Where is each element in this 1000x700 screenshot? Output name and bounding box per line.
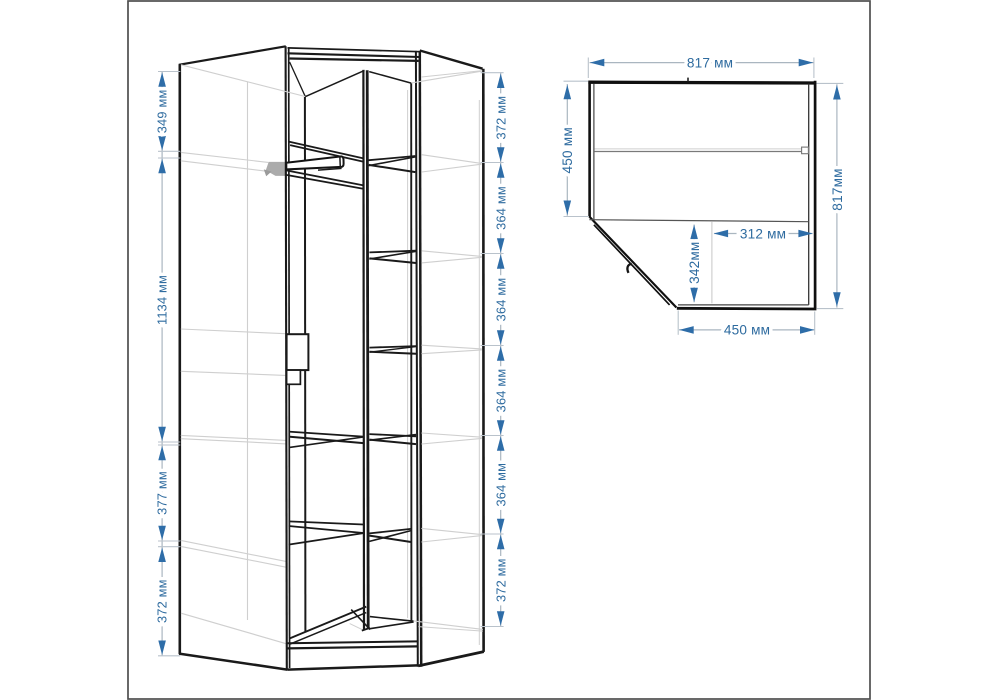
- svg-text:364 мм: 364 мм: [493, 369, 508, 413]
- svg-text:349 мм: 349 мм: [155, 90, 170, 134]
- svg-text:312 мм: 312 мм: [740, 226, 786, 241]
- svg-text:364 мм: 364 мм: [493, 463, 508, 507]
- svg-text:372 мм: 372 мм: [493, 558, 508, 602]
- svg-text:450 мм: 450 мм: [724, 323, 770, 338]
- svg-text:817 мм: 817 мм: [687, 55, 733, 70]
- svg-text:817мм: 817мм: [830, 168, 845, 210]
- svg-text:364 мм: 364 мм: [493, 278, 508, 322]
- svg-text:342мм: 342мм: [687, 242, 702, 284]
- svg-text:372 мм: 372 мм: [155, 579, 170, 623]
- svg-text:450 мм: 450 мм: [560, 127, 575, 173]
- svg-text:377 мм: 377 мм: [155, 471, 170, 515]
- svg-text:364 мм: 364 мм: [493, 186, 508, 230]
- svg-text:1134 мм: 1134 мм: [155, 275, 170, 325]
- svg-text:372 мм: 372 мм: [493, 96, 508, 140]
